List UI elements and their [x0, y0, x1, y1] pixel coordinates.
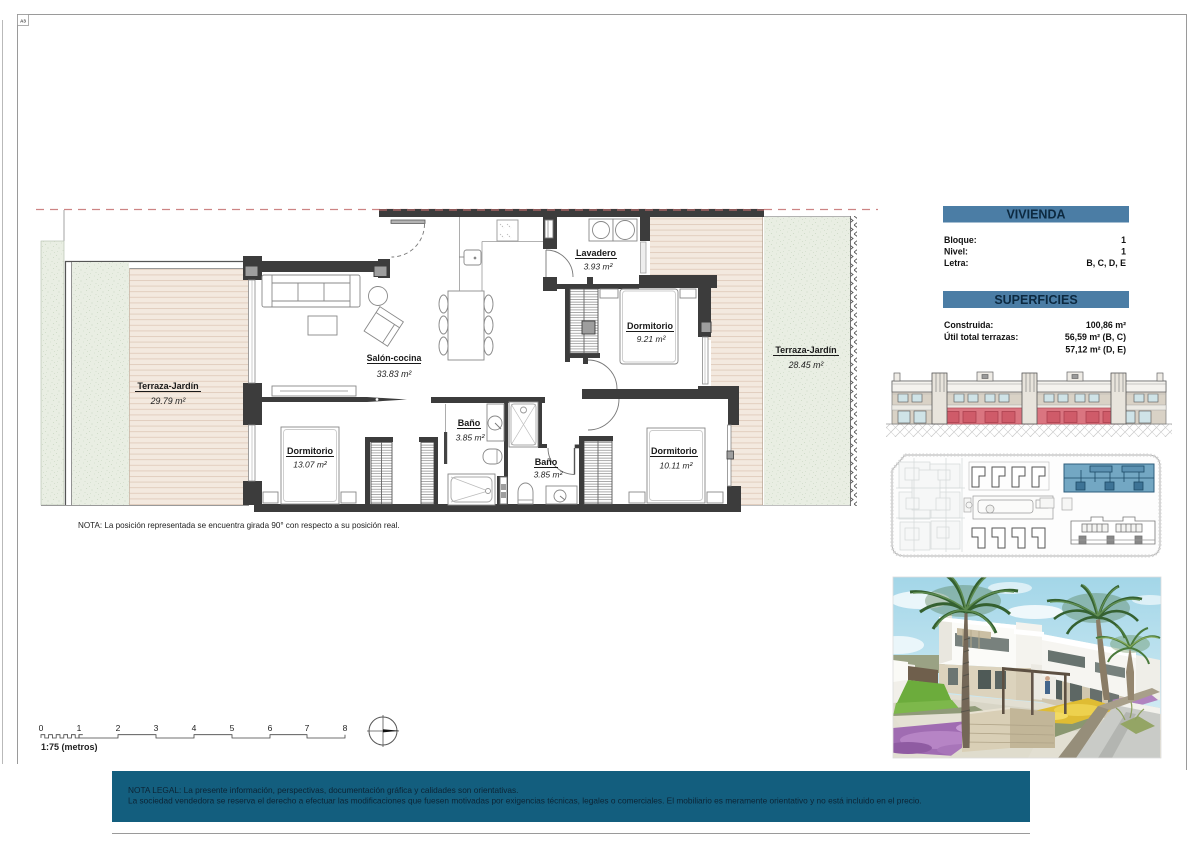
svg-text:4: 4: [192, 723, 197, 733]
svg-text:VIVIENDA: VIVIENDA: [1006, 208, 1065, 222]
svg-text:29.79 m²: 29.79 m²: [150, 396, 187, 406]
svg-text:1: 1: [1121, 235, 1126, 245]
svg-text:1: 1: [1121, 247, 1126, 257]
svg-text:Terraza-Jardín: Terraza-Jardín: [137, 381, 198, 391]
svg-text:Dormitorio: Dormitorio: [651, 446, 698, 456]
svg-text:Terraza-Jardín: Terraza-Jardín: [775, 345, 836, 355]
svg-text:Letra:: Letra:: [944, 258, 969, 268]
svg-text:57,12 m² (D, E): 57,12 m² (D, E): [1065, 345, 1126, 355]
svg-text:Dormitorio: Dormitorio: [627, 321, 674, 331]
svg-text:1: 1: [77, 723, 82, 733]
svg-text:6: 6: [268, 723, 273, 733]
svg-text:3.93 m²: 3.93 m²: [584, 262, 614, 272]
svg-text:SUPERFICIES: SUPERFICIES: [994, 293, 1077, 307]
svg-text:Dormitorio: Dormitorio: [287, 446, 334, 456]
svg-text:A3: A3: [20, 19, 26, 24]
svg-text:0: 0: [39, 723, 44, 733]
svg-text:Baño: Baño: [458, 418, 481, 428]
svg-text:Salón-cocina: Salón-cocina: [367, 353, 422, 363]
svg-text:28.45 m²: 28.45 m²: [788, 360, 825, 370]
svg-text:Baño: Baño: [535, 457, 558, 467]
svg-text:8: 8: [343, 723, 348, 733]
svg-text:10.11 m²: 10.11 m²: [660, 461, 694, 471]
svg-text:Bloque:: Bloque:: [944, 235, 977, 245]
svg-text:La sociedad vendedora se reser: La sociedad vendedora se reserva el dere…: [128, 796, 922, 806]
svg-text:3.85 m²: 3.85 m²: [456, 433, 486, 443]
svg-text:100,86 m²: 100,86 m²: [1086, 320, 1126, 330]
svg-text:3.85 m²: 3.85 m²: [534, 470, 564, 480]
svg-text:NOTA LEGAL: La presente inform: NOTA LEGAL: La presente información, per…: [128, 785, 518, 795]
svg-text:2: 2: [116, 723, 121, 733]
svg-text:Útil total terrazas:: Útil total terrazas:: [944, 331, 1018, 342]
svg-text:13.07 m²: 13.07 m²: [293, 460, 328, 470]
svg-text:5: 5: [230, 723, 235, 733]
svg-text:Lavadero: Lavadero: [576, 248, 617, 258]
svg-text:Nivel:: Nivel:: [944, 247, 968, 257]
svg-text:Construida:: Construida:: [944, 320, 993, 330]
svg-text:B, C, D, E: B, C, D, E: [1086, 258, 1126, 268]
svg-text:56,59 m² (B, C): 56,59 m² (B, C): [1065, 332, 1126, 342]
svg-text:1:75 (metros): 1:75 (metros): [41, 742, 98, 752]
svg-text:7: 7: [305, 723, 310, 733]
svg-text:NOTA: La posición representada: NOTA: La posición representada se encuen…: [78, 521, 400, 530]
svg-text:33.83 m²: 33.83 m²: [377, 369, 413, 379]
svg-text:3: 3: [154, 723, 159, 733]
svg-text:9.21 m²: 9.21 m²: [637, 334, 667, 344]
